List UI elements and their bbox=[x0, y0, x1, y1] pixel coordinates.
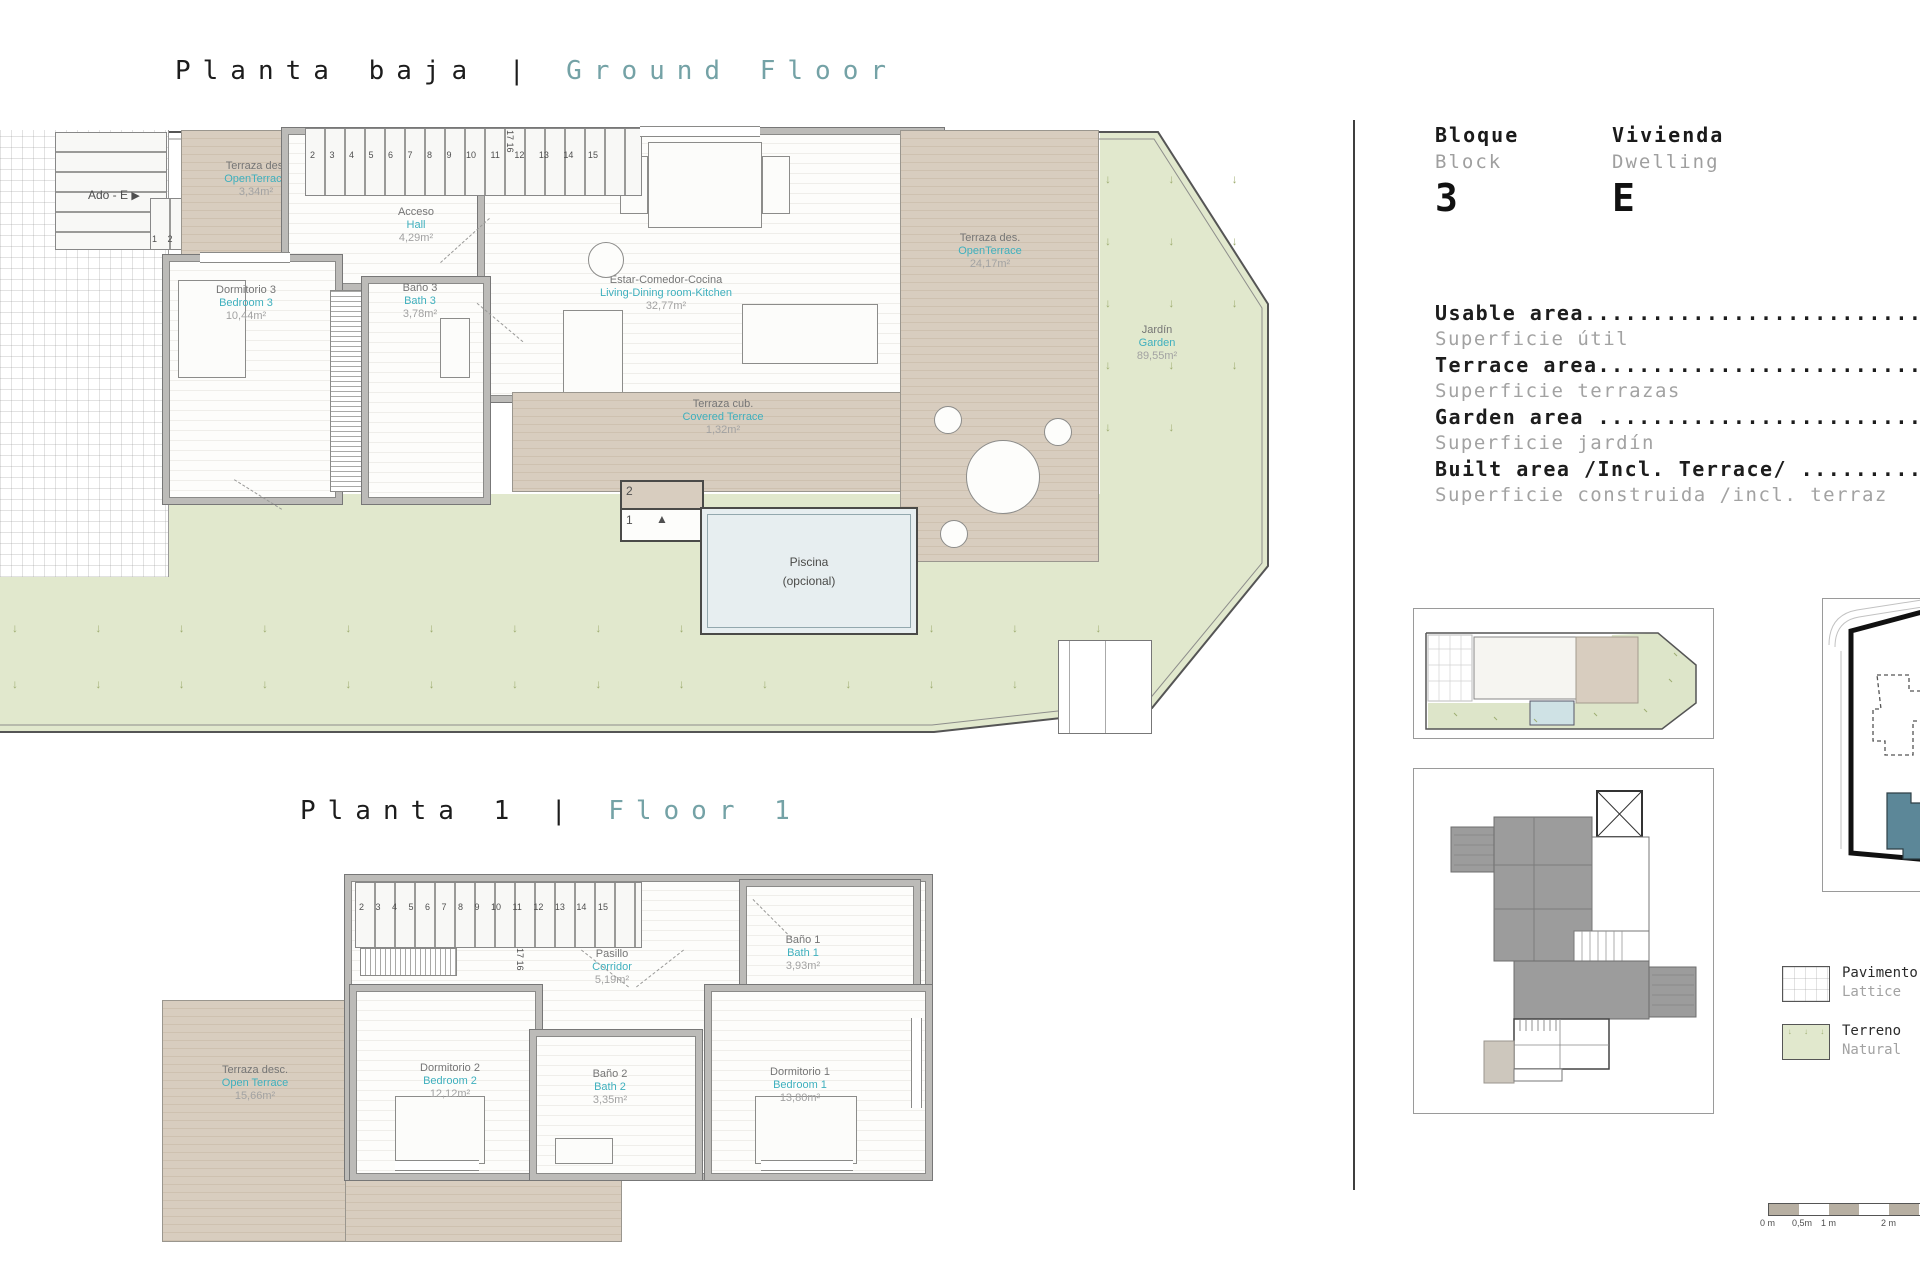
gf-open-terrace-small-label: Terraza des. OpenTerrace 3,34m² bbox=[224, 160, 288, 199]
bed bbox=[755, 1096, 857, 1164]
block-label-en: Block bbox=[1435, 149, 1519, 176]
f1-open-terrace-label: Terraza desc. Open Terrace 15,66m² bbox=[222, 1064, 288, 1103]
pool-label: Piscina (opcional) bbox=[702, 553, 916, 591]
block-group: Bloque Block 3 bbox=[1435, 122, 1519, 220]
scale-label: 0,5m bbox=[1792, 1218, 1812, 1228]
terrain-swatch: ↓ ↓ ↓ bbox=[1782, 1024, 1830, 1060]
area-row-en: Garden area ............................ bbox=[1435, 404, 1920, 430]
area-table: Usable area.............................… bbox=[1435, 300, 1920, 508]
f1-bath1-label: Baño 1 Bath 1 3,93m² bbox=[786, 934, 821, 973]
terrace-chair bbox=[1044, 418, 1072, 446]
legend-sublabel: Natural bbox=[1842, 1041, 1901, 1060]
f1-stairs bbox=[355, 882, 642, 948]
floor1-title: Planta 1 | Floor 1 bbox=[300, 796, 802, 826]
garden-grass-pattern: ↓ ↓ ↓ ↓ ↓ ↓ ↓ ↓ ↓ ↓ ↓ ↓ ↓ ↓ ↓ ↓ ↓ ↓ ↓ ↓ … bbox=[12, 600, 1122, 726]
f1-corridor-label: Pasillo Corridor 5,19m² bbox=[592, 948, 632, 987]
legend-label: Terreno bbox=[1842, 1022, 1901, 1041]
area-row-es: Superficie construida /incl. terraz bbox=[1435, 482, 1920, 508]
garden-grass-pattern: ↓ ↓ ↓ ↓ ↓ ↓ ↓ ↓ ↓ ↓ ↓ ↓ ↓ ↓ bbox=[1105, 148, 1263, 544]
block-value: 3 bbox=[1435, 176, 1519, 220]
kitchen-sink bbox=[588, 242, 624, 278]
triangle-up-icon: ▲ bbox=[656, 512, 668, 526]
floor1-plan: Terraza desc. Open Terrace 15,66m² 2 3 4… bbox=[155, 868, 930, 1246]
area-row-en: Terrace area............................ bbox=[1435, 352, 1920, 378]
window bbox=[640, 126, 760, 137]
window bbox=[911, 1018, 922, 1108]
gf-covered-terrace-label: Terraza cub. Covered Terrace 1,32m² bbox=[682, 398, 763, 437]
f1-stair-numbers: 2 3 4 5 6 7 8 9 10 11 12 13 14 15 bbox=[359, 902, 637, 912]
window bbox=[761, 1160, 853, 1171]
dwelling-value: E bbox=[1612, 176, 1724, 220]
legend-label: Pavimento bbox=[1842, 964, 1918, 983]
f1-wardrobe bbox=[360, 948, 457, 976]
title-en: Ground Floor bbox=[566, 56, 898, 86]
dwelling-label-en: Dwelling bbox=[1612, 149, 1724, 176]
area-row-es: Superficie jardín bbox=[1435, 430, 1920, 456]
lattice-swatch bbox=[1782, 966, 1830, 1002]
gf-stair-numbers: 2 3 4 5 6 7 8 9 10 11 12 13 14 15 bbox=[310, 150, 638, 160]
gf-garden-label: Jardín Garden 89,55m² bbox=[1137, 324, 1177, 363]
dwelling-label-es: Vivienda bbox=[1612, 122, 1724, 149]
ground-floor-title: Planta baja | Ground Floor bbox=[175, 56, 898, 86]
site-thumbnail bbox=[1413, 608, 1714, 739]
triangle-right-icon: ▶ bbox=[131, 190, 139, 202]
scale-label: 2 m bbox=[1881, 1218, 1896, 1228]
gf-bedroom3-label: Dormitorio 3 Bedroom 3 10,44m² bbox=[216, 284, 276, 323]
f1-bedroom2-label: Dormitorio 2 Bedroom 2 12,12m² bbox=[420, 1062, 480, 1101]
ground-floor-plan: ↓ ↓ ↓ ↓ ↓ ↓ ↓ ↓ ↓ ↓ ↓ ↓ ↓ ↓ ↓ ↓ ↓ ↓ ↓ ↓ … bbox=[0, 122, 1272, 736]
pool: Piscina (opcional) bbox=[700, 507, 918, 635]
scale-bar bbox=[1768, 1203, 1920, 1216]
gf-wardrobe bbox=[330, 290, 366, 492]
title-es: Planta 1 bbox=[300, 796, 521, 826]
title-separator: | bbox=[549, 796, 581, 826]
area-row-es: Superficie terrazas bbox=[1435, 378, 1920, 404]
f1-open-terrace-strip bbox=[345, 1170, 622, 1242]
dining-table bbox=[648, 142, 762, 228]
terrace-table bbox=[966, 440, 1040, 514]
title-en: Floor 1 bbox=[608, 796, 802, 826]
title-separator: | bbox=[507, 56, 539, 86]
location-map bbox=[1822, 598, 1920, 892]
location-map-drawing bbox=[1823, 599, 1920, 889]
area-row-es: Superficie útil bbox=[1435, 326, 1920, 352]
garden-gate bbox=[1058, 640, 1152, 734]
f1-bath2-label: Baño 2 Bath 2 3,35m² bbox=[593, 1068, 628, 1107]
key-plan bbox=[1413, 768, 1714, 1114]
bath-fixture bbox=[440, 318, 470, 378]
dwelling-group: Vivienda Dwelling E bbox=[1612, 122, 1724, 220]
terrace-chair bbox=[934, 406, 962, 434]
sofa bbox=[742, 304, 878, 364]
dining-chair bbox=[762, 156, 790, 214]
area-row-en: Usable area............................. bbox=[1435, 300, 1920, 326]
site-thumbnail-drawing bbox=[1414, 609, 1711, 736]
window bbox=[395, 1160, 479, 1171]
gf-open-terrace-large-label: Terraza des. OpenTerrace 24,17m² bbox=[958, 232, 1022, 271]
gf-stair-numbers-end: 17 16 bbox=[505, 130, 514, 190]
scale-label: 1 m bbox=[1821, 1218, 1836, 1228]
terrace-chair bbox=[940, 520, 968, 548]
block-label-es: Bloque bbox=[1435, 122, 1519, 149]
ado-e-label: Ado - E ▶ bbox=[88, 188, 140, 202]
gf-hall-label: Acceso Hall 4,29m² bbox=[398, 206, 434, 245]
bath-fixture bbox=[555, 1138, 613, 1164]
title-es: Planta baja bbox=[175, 56, 479, 86]
area-row-en: Built area /Incl. Terrace/ ............. bbox=[1435, 456, 1920, 482]
legend-sublabel: Lattice bbox=[1842, 983, 1918, 1002]
gf-stairs bbox=[305, 128, 642, 196]
terrace-step: 1 ▲ bbox=[620, 508, 704, 542]
gf-living-label: Estar-Comedor-Cocina Living-Dining room-… bbox=[600, 274, 732, 313]
bed bbox=[395, 1096, 485, 1164]
f1-bedroom1-label: Dormitorio 1 Bedroom 1 13,80m² bbox=[770, 1066, 830, 1105]
key-plan-drawing bbox=[1414, 769, 1711, 1111]
window bbox=[200, 252, 290, 263]
plan-sheet: Planta baja | Ground Floor ↓ ↓ ↓ ↓ ↓ ↓ ↓… bbox=[0, 0, 1920, 1280]
scale-label: 0 m bbox=[1760, 1218, 1775, 1228]
f1-open-terrace bbox=[162, 1000, 347, 1242]
gf-bath3-label: Baño 3 Bath 3 3,78m² bbox=[403, 282, 438, 321]
panel-divider bbox=[1353, 120, 1355, 1190]
